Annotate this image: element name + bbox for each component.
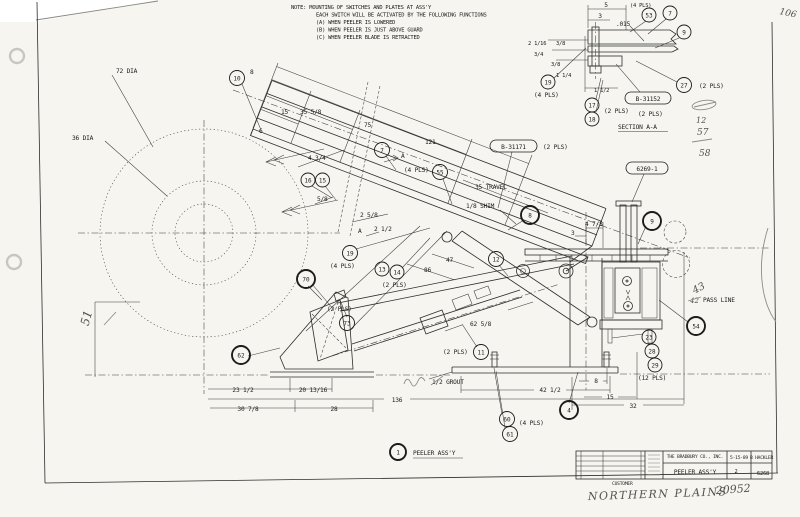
dim-2-5-8: 2 5/8 [360, 212, 378, 219]
sec-dim-1-1-2: 1 1/2 [594, 88, 609, 94]
svg-text:7: 7 [380, 147, 384, 154]
handwritten-annotations: 106 51 12 57 58 43 42 NORTHERN PLAINS 20… [78, 7, 798, 503]
sec-dim-3-8a: 3/8 [556, 41, 565, 47]
svg-text:27: 27 [680, 82, 688, 89]
handwritten-58: 58 [699, 149, 711, 159]
svg-text:17: 17 [588, 102, 596, 109]
svg-text:19: 19 [346, 250, 354, 257]
dim-75: 75 [364, 122, 372, 129]
handwritten-12: 12 [696, 116, 706, 125]
balloon-11: 11 [474, 345, 489, 360]
section-arrow-label: A [401, 153, 405, 160]
dim-72-dia: 72 DIA [116, 68, 138, 75]
svg-text:13: 13 [378, 266, 386, 273]
balloon-19: 19 [343, 246, 358, 261]
sec-dim-3-4: 3/4 [534, 52, 543, 58]
dim-121: 121 [425, 139, 436, 146]
section-title: SECTION A-A [618, 124, 657, 131]
section-arrow-label: A [358, 228, 362, 235]
peeler-arm: 8 15 35 5/8 6 75 121 4 3/4 5/8 2 5/8 A A… [233, 63, 690, 264]
handwritten-43: 43 [690, 281, 707, 297]
svg-text:73: 73 [343, 320, 351, 327]
sec-dim-3: 3 [598, 13, 602, 20]
dim-30-7-8: 30 7/8 [237, 406, 259, 413]
svg-text:60: 60 [503, 416, 511, 423]
titleblock-title: PEELER ASS'Y [674, 469, 717, 476]
label-shim: 1/8 SHIM [466, 203, 495, 210]
svg-text:54: 54 [692, 323, 700, 330]
pls-4: (4 PLS) [519, 420, 544, 427]
balloon-13: 13 [375, 262, 389, 276]
titleblock-drawn-by: B HACKLER [750, 455, 774, 461]
note-line: (C) WHEN PEELER BLADE IS RETRACTED [316, 35, 420, 41]
label-pass-line: PASS LINE [703, 297, 735, 304]
balloon-1: 1 [390, 444, 406, 460]
balloon-10: 10 [230, 71, 245, 86]
balloon-60: 60 [500, 412, 515, 427]
pls-2: (2 PLS) [638, 111, 663, 118]
tag-6269-1: 6269-1 [626, 162, 668, 174]
balloon-16: 16 [301, 173, 315, 187]
pls-12: (12 PLS) [638, 375, 666, 382]
balloon-9-section: 9 [677, 25, 691, 39]
balloon-17: 17 [585, 98, 599, 112]
note-line: EACH SWITCH WILL BE ACTIVATED BY THE FOL… [316, 13, 487, 19]
svg-text:9: 9 [650, 218, 654, 225]
svg-text:16: 16 [304, 177, 312, 184]
svg-text:1: 1 [396, 449, 400, 456]
pls-4: (4 PLS) [534, 92, 559, 99]
balloon-29: 29 [648, 358, 662, 372]
titleblock-date: 5-15-89 [730, 455, 748, 461]
svg-text:8: 8 [528, 212, 532, 219]
svg-text:29: 29 [651, 362, 659, 369]
dim-6: 6 [259, 128, 263, 135]
balloon-23: 23 [642, 330, 656, 344]
titleblock-company: THE BRADBURY CO., INC. [667, 454, 723, 460]
balloon-19-section: 19 [541, 75, 555, 89]
sec-dim-2-1-16: 2 1/16 [528, 41, 546, 47]
svg-text:23: 23 [645, 334, 653, 341]
svg-text:28: 28 [648, 348, 656, 355]
pls-4: (4 PLS) [404, 167, 429, 174]
label-grout: 1/2 GROUT [432, 379, 464, 386]
handwritten-customer: NORTHERN PLAINS [587, 485, 728, 503]
dim-28: 28 [330, 406, 338, 413]
svg-text:62: 62 [237, 352, 245, 359]
dim-8: 8 [250, 69, 254, 76]
svg-text:61: 61 [506, 431, 514, 438]
dim-15: 15 [281, 109, 289, 116]
svg-text:B-31152: B-31152 [636, 96, 661, 103]
sec-dim-5: 5 [604, 2, 608, 9]
titleblock-sheet: 2 [734, 469, 737, 475]
balloon-leaders [242, 84, 688, 428]
svg-text:11: 11 [477, 349, 485, 356]
punch-hole [7, 255, 21, 269]
sec-dim-3-8b: 3/8 [551, 62, 560, 68]
dim-3: 3 [571, 230, 575, 237]
svg-text:18: 18 [588, 116, 596, 123]
pls-2: (2 PLS) [699, 83, 724, 90]
dim-4-7-8: 4 7/8 [585, 221, 603, 228]
balloon-73: 73 [340, 316, 355, 331]
balloon-62: 62 [232, 346, 250, 364]
svg-text:7: 7 [668, 10, 672, 17]
handwritten-57: 57 [697, 128, 709, 138]
coil-circles: 72 DIA 36 DIA [72, 68, 340, 394]
svg-text:10: 10 [233, 75, 241, 82]
svg-text:6269-1: 6269-1 [636, 166, 658, 173]
pls-2: (2 PLS) [604, 108, 629, 115]
balloon-55: 55 [433, 165, 448, 180]
balloon-9: 9 [643, 212, 661, 230]
dim-4-3-4: 4 3/4 [308, 155, 326, 162]
pls-2: (2 PLS) [543, 144, 568, 151]
dim-136: 136 [392, 397, 403, 404]
base-and-dimensions: 1/2 GROUT 23 1/2 20 13/16 136 30 7/8 28 … [85, 352, 770, 413]
handwritten-corner: 106 [778, 7, 797, 20]
svg-text:19: 19 [544, 79, 552, 86]
svg-text:14: 14 [393, 269, 401, 276]
scanned-engineering-drawing: NOTE: MOUNTING OF SWITCHES AND PLATES AT… [0, 0, 800, 517]
titleblock-customer-label: CUSTOMER [612, 481, 633, 487]
sec-dim-015: .015 [616, 21, 631, 28]
dim-35-5-8: 35 5/8 [300, 109, 322, 116]
balloon-53: 53 [642, 8, 656, 22]
balloon-61: 61 [503, 427, 518, 442]
handwritten-51: 51 [78, 309, 95, 327]
part-tags: B-31171 B-31152 6269-1 [490, 92, 671, 174]
pls-2: (2 PLS) [327, 306, 352, 313]
punch-hole [10, 49, 24, 63]
dim-42-1-2: 42 1/2 [539, 387, 561, 394]
pls-2: (2 PLS) [443, 349, 468, 356]
svg-text:9: 9 [682, 29, 686, 36]
note-line: (A) WHEN PEELER IS LOWERED [316, 20, 395, 26]
balloon-8: 8 [521, 206, 539, 224]
tag-b31152: B-31152 [625, 92, 671, 104]
svg-text:53: 53 [645, 12, 653, 19]
svg-text:15: 15 [319, 177, 327, 184]
handwritten-order: 20952 [714, 482, 751, 497]
dim-62-5-8: 62 5/8 [470, 321, 492, 328]
dim-86: 86 [424, 267, 432, 274]
svg-text:12: 12 [492, 256, 500, 263]
balloon-28: 28 [645, 344, 659, 358]
dim-47: 47 [446, 257, 454, 264]
titleblock-drawing-no: 6268 [757, 471, 769, 477]
note-line: NOTE: MOUNTING OF SWITCHES AND PLATES AT… [291, 5, 432, 11]
dim-36-dia: 36 DIA [72, 135, 94, 142]
tag-b31171: B-31171 [490, 140, 537, 152]
balloon-14: 14 [390, 265, 404, 279]
dim-2-1-2: 2 1/2 [374, 226, 392, 233]
svg-text:B-31171: B-31171 [501, 144, 526, 151]
dim-5-8: 5/8 [317, 196, 328, 203]
dim-20-13-16: 20 13/16 [299, 387, 328, 394]
note-block: NOTE: MOUNTING OF SWITCHES AND PLATES AT… [291, 5, 487, 41]
dim-15b: 15 [606, 394, 614, 401]
svg-text:55: 55 [436, 169, 444, 176]
label-peeler-assy: PEELER ASS'Y [413, 450, 456, 457]
balloon-27: 27 [677, 78, 692, 93]
balloon-4: 4 [560, 401, 578, 419]
balloon-54: 54 [687, 317, 705, 335]
balloon-70: 70 [297, 270, 315, 288]
dim-32: 32 [629, 403, 637, 410]
pls-4: (4 PLS) [330, 263, 355, 270]
balloon-7-section: 7 [663, 6, 677, 20]
svg-text:4: 4 [567, 407, 571, 414]
left-pedestal [270, 290, 374, 377]
svg-text:70: 70 [302, 276, 310, 283]
balloon-18: 18 [585, 112, 599, 126]
balloon-15: 15 [316, 173, 330, 187]
dim-23-1-2: 23 1/2 [232, 387, 254, 394]
dim-8b: 8 [594, 378, 598, 385]
note-line: (B) WHEN PEELER IS JUST ABOVE GUARD [316, 28, 423, 34]
assembly-label: PEELER ASS'Y [413, 450, 463, 458]
pls-2: (2 PLS) [382, 282, 407, 289]
